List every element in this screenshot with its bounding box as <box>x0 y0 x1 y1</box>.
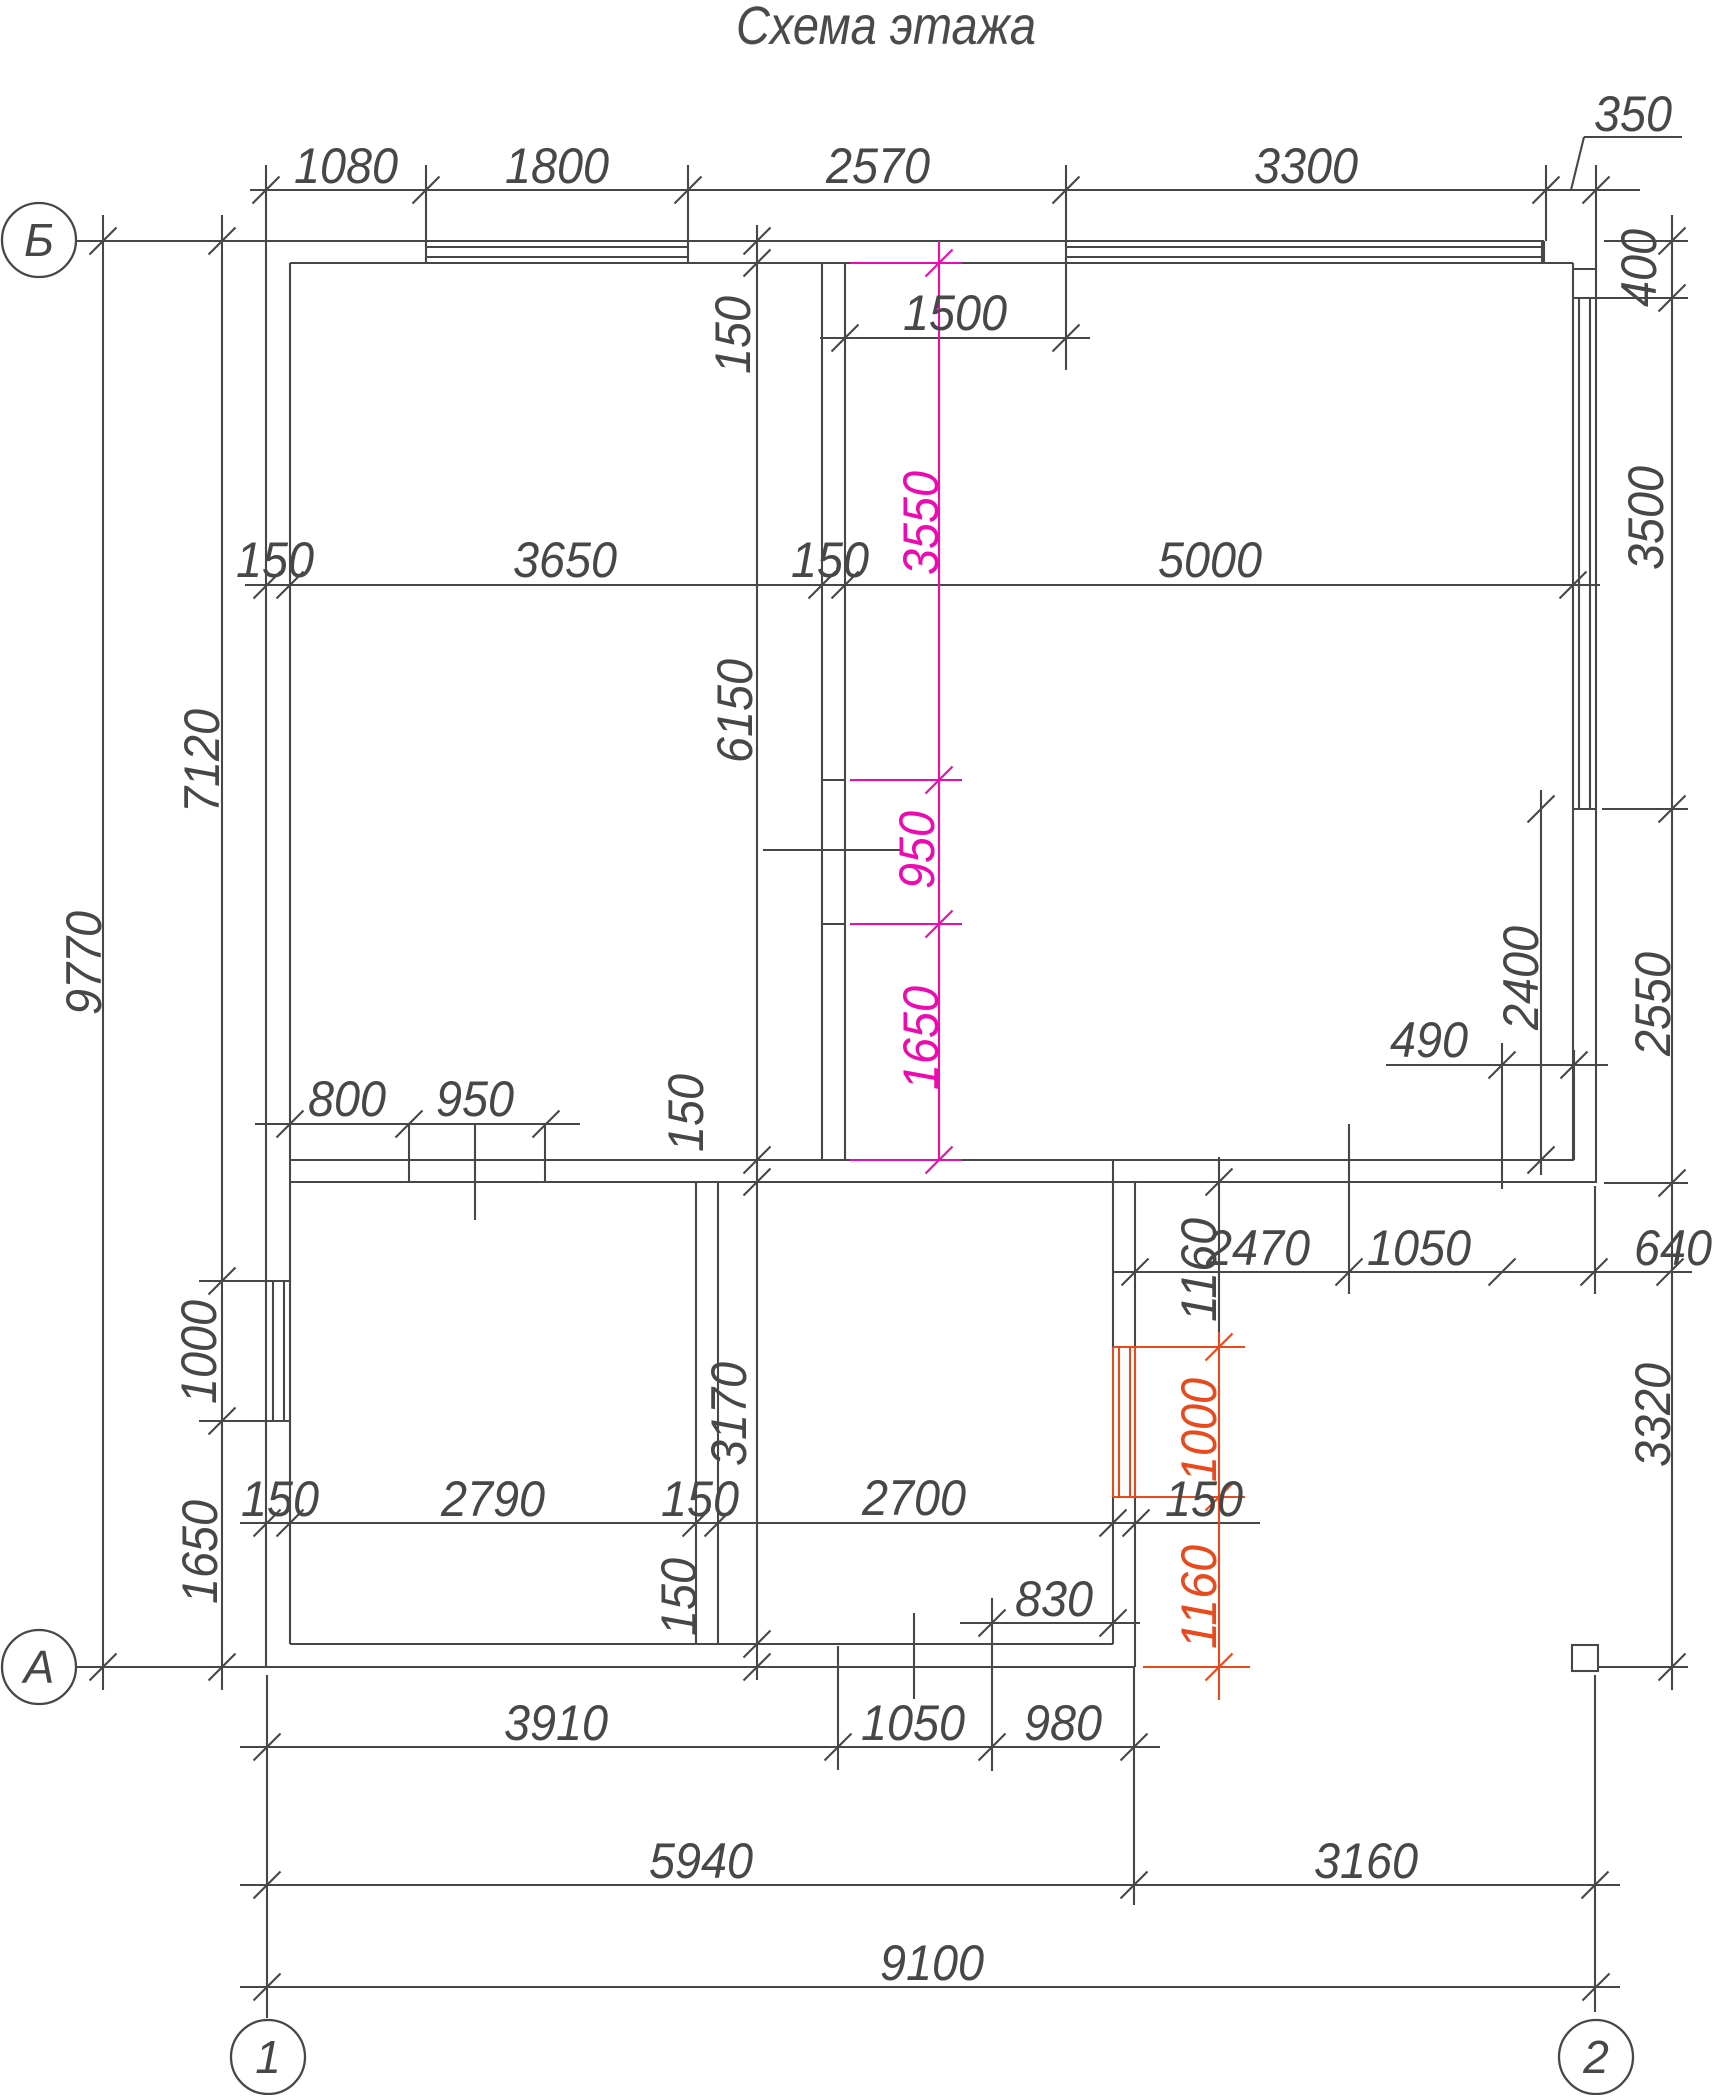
svg-text:2550: 2550 <box>1625 952 1681 1057</box>
svg-text:150: 150 <box>236 532 314 588</box>
svg-text:1160: 1160 <box>1171 1218 1227 1322</box>
svg-text:1050: 1050 <box>1367 1220 1471 1276</box>
svg-text:3320: 3320 <box>1625 1363 1681 1467</box>
svg-text:490: 490 <box>1390 1012 1468 1068</box>
svg-text:1650: 1650 <box>893 986 949 1090</box>
svg-text:3550: 3550 <box>893 471 949 575</box>
svg-text:3300: 3300 <box>1254 138 1358 194</box>
svg-text:3650: 3650 <box>513 532 617 588</box>
svg-text:9100: 9100 <box>880 1935 984 1991</box>
svg-text:А: А <box>21 1641 55 1693</box>
svg-text:150: 150 <box>658 1074 714 1152</box>
svg-text:1650: 1650 <box>172 1500 228 1604</box>
svg-text:150: 150 <box>661 1471 739 1527</box>
svg-text:1500: 1500 <box>903 285 1007 341</box>
svg-text:1000: 1000 <box>1171 1378 1227 1482</box>
svg-text:150: 150 <box>791 532 869 588</box>
svg-text:2790: 2790 <box>440 1471 545 1527</box>
svg-text:830: 830 <box>1015 1571 1093 1627</box>
svg-text:Б: Б <box>24 214 54 266</box>
svg-text:1050: 1050 <box>861 1695 965 1751</box>
svg-text:3170: 3170 <box>701 1362 757 1466</box>
svg-text:1160: 1160 <box>1171 1545 1227 1649</box>
svg-text:1: 1 <box>255 2031 281 2083</box>
svg-text:Схема этажа: Схема этажа <box>736 0 1036 56</box>
svg-text:640: 640 <box>1634 1220 1712 1276</box>
svg-text:350: 350 <box>1594 86 1672 142</box>
svg-text:9770: 9770 <box>56 911 112 1015</box>
svg-text:150: 150 <box>241 1471 319 1527</box>
svg-text:3910: 3910 <box>504 1695 608 1751</box>
svg-text:950: 950 <box>436 1071 514 1127</box>
svg-text:1800: 1800 <box>505 138 609 194</box>
svg-text:2: 2 <box>1582 2031 1609 2083</box>
svg-text:2400: 2400 <box>1493 926 1549 1031</box>
svg-text:800: 800 <box>308 1071 386 1127</box>
svg-text:2700: 2700 <box>861 1470 966 1526</box>
svg-text:150: 150 <box>705 296 761 374</box>
svg-text:6150: 6150 <box>707 659 763 763</box>
svg-text:1080: 1080 <box>294 138 398 194</box>
svg-text:5000: 5000 <box>1158 532 1262 588</box>
svg-text:3500: 3500 <box>1618 466 1674 570</box>
svg-text:400: 400 <box>1611 229 1667 307</box>
svg-text:1000: 1000 <box>171 1300 227 1404</box>
svg-text:5940: 5940 <box>649 1833 753 1889</box>
svg-text:950: 950 <box>889 811 945 889</box>
svg-text:7120: 7120 <box>174 709 230 813</box>
svg-text:2570: 2570 <box>825 138 930 194</box>
svg-text:3160: 3160 <box>1314 1833 1418 1889</box>
svg-text:150: 150 <box>651 1558 707 1636</box>
svg-text:980: 980 <box>1024 1695 1102 1751</box>
